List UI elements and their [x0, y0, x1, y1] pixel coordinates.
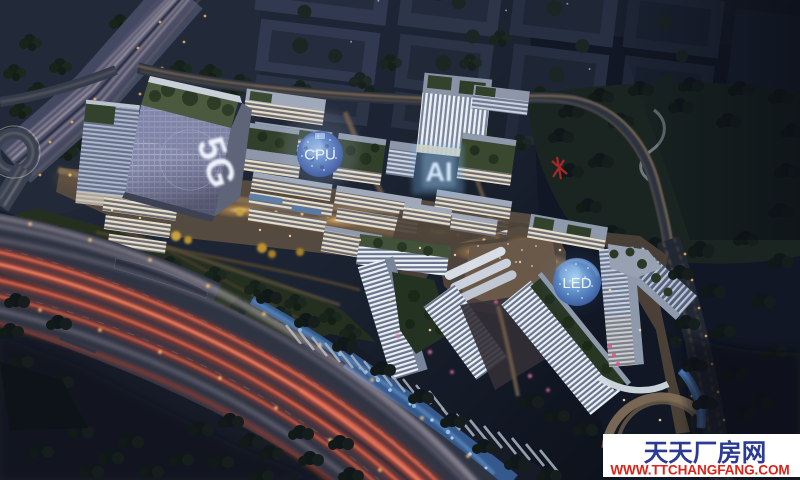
svg-text:WWW.TTCHANGFANG.COM: WWW.TTCHANGFANG.COM [610, 463, 789, 478]
svg-text:LED: LED [562, 275, 591, 292]
svg-text:AI: AI [426, 157, 453, 187]
svg-text:CPU: CPU [304, 147, 336, 164]
